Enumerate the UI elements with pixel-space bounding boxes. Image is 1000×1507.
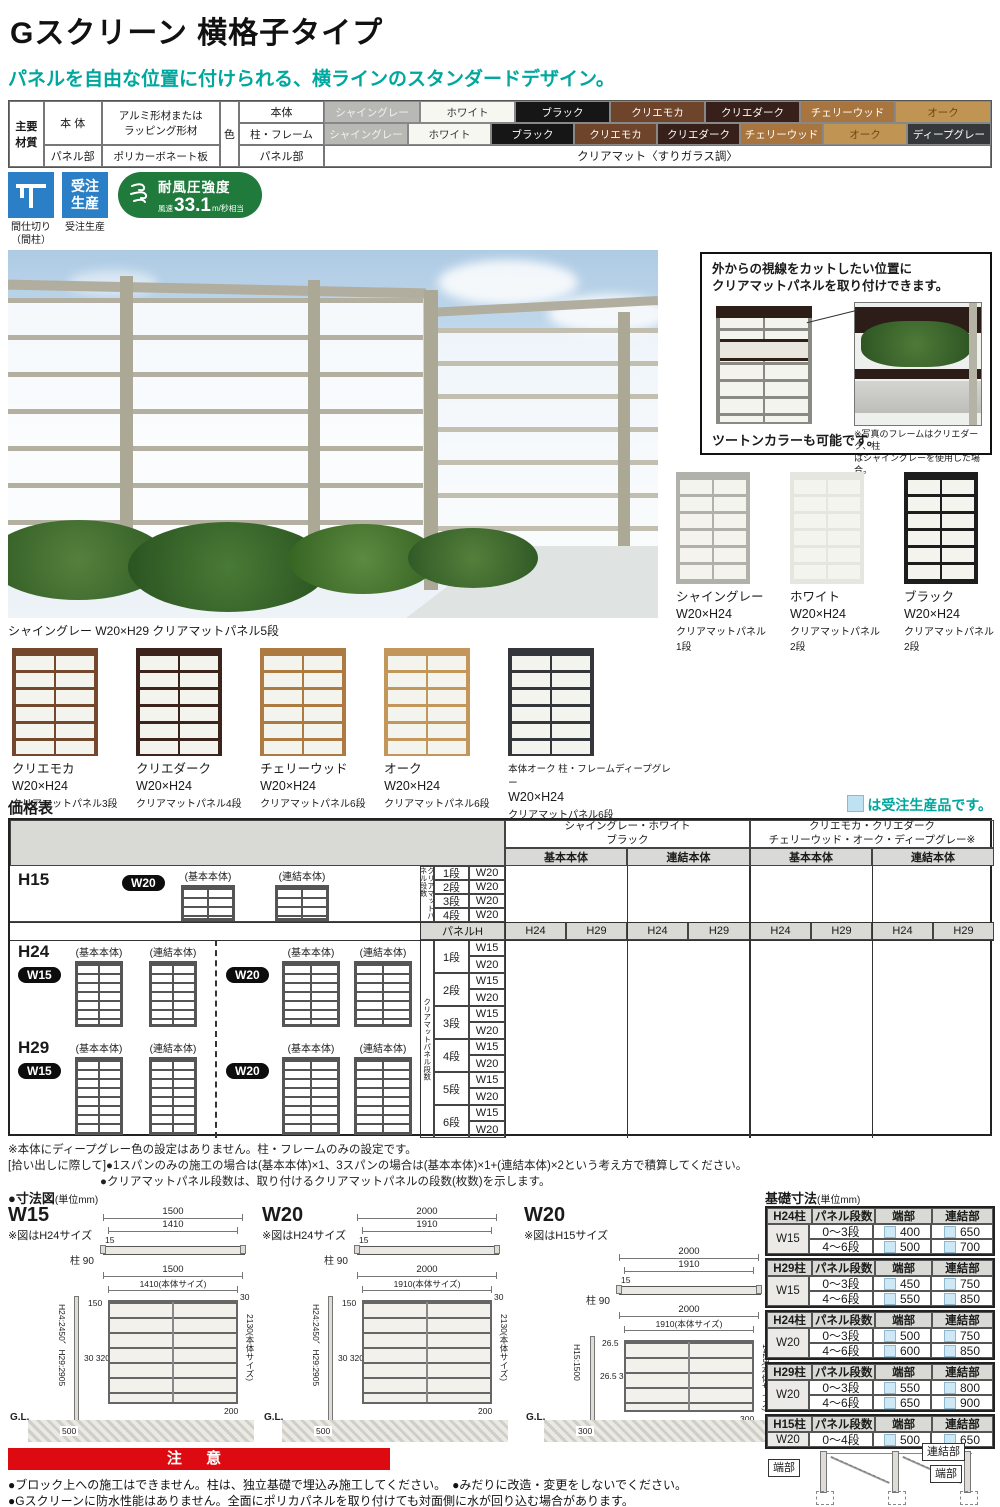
panel-h-col: H24 — [627, 922, 688, 940]
product-photo — [8, 250, 658, 618]
joint-label: 連結部 — [922, 1443, 965, 1461]
dan-cell: 1段 — [434, 940, 469, 973]
h15-basic-card: (基本本体) — [178, 868, 238, 921]
catalog-page: Gスクリーン 横格子タイプ パネルを自由な位置に付けられる、横ラインのスタンダー… — [0, 0, 1000, 1507]
swatch-crie-dark: クリエダーク — [705, 101, 800, 123]
variant-name: シャイングレー — [676, 590, 764, 604]
h24-w20-joint-card: (連結本体) — [350, 944, 416, 1027]
h15-dan-cell: 2段 — [434, 880, 469, 894]
variant-name: クリエモカ — [12, 762, 75, 776]
order-production-label: 受注生産 — [56, 222, 114, 235]
h29-w20-joint-card: (連結本体) — [350, 1040, 416, 1135]
mini-fence — [354, 1057, 412, 1135]
order-check — [884, 1382, 896, 1394]
swatch-oak-2: オーク — [823, 123, 907, 145]
foundation-title: 基礎寸法(単位mm) — [765, 1188, 860, 1207]
color-row2-label: 柱・フレーム — [239, 123, 324, 145]
price-sub-header: 連結本体 — [627, 848, 750, 866]
price-sub-header: 連結本体 — [872, 848, 994, 866]
photo-left-wall — [8, 298, 423, 550]
order-check — [944, 1226, 956, 1238]
h29-label: H29 — [18, 1038, 49, 1058]
panel-color-value: クリアマット〈すりガラス調〉 — [324, 145, 991, 167]
order-check — [944, 1241, 956, 1253]
page-subtitle: パネルを自由な位置に付けられる、横ラインのスタンダードデザイン。 — [8, 64, 615, 91]
variant-panels: クリアマットパネル2段 — [790, 623, 882, 653]
dim-diagram-w15: W15 ※図はH24サイズ 1500 1410 15 柱 90 1500 141… — [8, 1204, 254, 1456]
partition-label: 間仕切り （間柱） — [0, 222, 62, 247]
color-row3-label: パネル部 — [239, 145, 324, 167]
panel-h-col: H29 — [566, 922, 627, 940]
mini-fence — [75, 1057, 123, 1135]
h29-w15-badge: W15 — [18, 1063, 61, 1079]
order-check — [944, 1293, 956, 1305]
caution-line-1: ●ブロック上への施工はできません。柱は、独立基礎で埋込み施工してください。 ●み… — [8, 1476, 687, 1493]
dan-cell: 5段 — [434, 1072, 469, 1105]
size-cell: W20 — [469, 1088, 505, 1105]
wind-title: 耐風圧強度 — [158, 176, 244, 196]
h29-w20-badge: W20 — [226, 1063, 269, 1079]
mini-fence — [275, 885, 329, 921]
order-check — [944, 1278, 956, 1290]
materials-corner-label: 主要 材質 — [9, 101, 44, 167]
page-title: Gスクリーン 横格子タイプ — [10, 8, 383, 52]
wind-suffix: 相当 — [229, 205, 244, 213]
h15-width-badge: W20 — [122, 875, 165, 891]
size-cell: W20 — [469, 1055, 505, 1072]
partition-icon — [8, 172, 54, 218]
h15-dan-cell: 1段 — [434, 866, 469, 880]
variant-name: ホワイト — [790, 590, 840, 604]
h15-size-cell: W20 — [469, 880, 505, 894]
price-sub-header: 基本本体 — [505, 848, 627, 866]
mini-fence — [181, 885, 235, 921]
swatch-deep-gray: ディープグレー — [907, 123, 991, 145]
variant-fence — [790, 472, 864, 584]
variant-name: クリエダーク — [136, 762, 211, 776]
dan-cell: 4段 — [434, 1039, 469, 1072]
order-legend: は受注生産品です。 — [847, 795, 992, 815]
dan-cell: 3段 — [434, 1006, 469, 1039]
swatch-oak: オーク — [895, 101, 991, 123]
mini-fence — [354, 961, 412, 1027]
wind-icon — [130, 180, 152, 211]
h29-basic-card: (基本本体) — [68, 1040, 130, 1135]
variant-card: クリエダークW20×H24 クリアマットパネル4段 — [136, 648, 242, 821]
swatch-black: ブラック — [515, 101, 610, 123]
swatch-crie-mocha-2: クリエモカ — [574, 123, 657, 145]
panel-h-col: H24 — [750, 922, 811, 940]
edge-label-right: 端部 — [930, 1465, 962, 1483]
variant-card: 本体オーク 柱・フレームディープグレー W20×H24 クリアマットパネル6段 — [508, 648, 672, 821]
price-group2-header: クリエモカ・クリエダークチェリーウッド・オーク・ディープグレー※ — [750, 820, 994, 848]
panel-h-col: H24 — [872, 922, 933, 940]
dim-diagram-w20-h24: W20 ※図はH24サイズ 2000 1910 15 柱 90 2000 191… — [262, 1204, 508, 1456]
foundation-table-3: H24柱パネル段数端部連結部 W20 0〜3段500750 4〜6段600850 — [765, 1310, 995, 1360]
materials-body-label: 本 体 — [44, 101, 102, 145]
variant-card: オークW20×H24 クリアマットパネル6段 — [384, 648, 490, 821]
price-left-diagrams: H24 W15 (基本本体) (連結本体) W20 (基本本体) (連結本体) … — [10, 940, 420, 1138]
variant-size: W20×H24 — [12, 779, 68, 793]
dan-cell: 6段 — [434, 1105, 469, 1138]
panel-h-col: H29 — [811, 922, 872, 940]
order-production-icon: 受注 生産 — [62, 172, 108, 218]
order-check — [884, 1293, 896, 1305]
wind-unit: m/秒 — [212, 205, 229, 213]
caution-banner: 注 意 — [8, 1448, 390, 1470]
order-check — [884, 1241, 896, 1253]
edge-label-left: 端部 — [768, 1459, 800, 1477]
h15-row: H15 W20 (基本本体) (連結本体) — [10, 866, 420, 922]
size-cell: W20 — [469, 1121, 505, 1138]
price-note-1: ※本体にディープグレー色の設定はありません。柱・フレームのみの設定です。 — [8, 1141, 417, 1157]
dim-diagram-w20-h15: W20 ※図はH15サイズ 2000 1910 15 柱 90 2000 191… — [524, 1204, 770, 1456]
dan-rot-label: クリアマットパネル段数 — [420, 940, 434, 1138]
h15-joint-card: (連結本体) — [272, 868, 332, 921]
wind-value: 33.1 — [174, 196, 211, 215]
variant-fence — [904, 472, 978, 584]
price-group1-header: シャイングレー・ホワイトブラック — [505, 820, 750, 848]
materials-color-table: 主要 材質 本 体 アルミ形材または ラッピング形材 パネル部 ポリカーボネート… — [8, 100, 992, 168]
variant-fence — [508, 648, 594, 756]
h24-w15-badge: W15 — [18, 967, 61, 983]
order-check — [944, 1330, 956, 1342]
swatch-white-2: ホワイト — [408, 123, 491, 145]
materials-panel-desc: ポリカーボネート板 — [102, 145, 220, 167]
variant-fence — [384, 648, 470, 756]
h15-size-cell: W20 — [469, 908, 505, 922]
panel-h-col: H24 — [505, 922, 566, 940]
size-cell: W20 — [469, 956, 505, 973]
size-cell: W20 — [469, 989, 505, 1006]
swatch-shine-gray-2: シャイングレー — [324, 123, 408, 145]
variant-fence — [136, 648, 222, 756]
h24-w20-badge: W20 — [226, 967, 269, 983]
panel-h-col: H29 — [688, 922, 750, 940]
wind-prefix: 風速 — [158, 205, 173, 213]
swatch-shine-gray: シャイングレー — [324, 101, 420, 123]
order-check — [944, 1345, 956, 1357]
foundation-table-2: H29柱パネル段数端部連結部 W15 0〜3段450750 4〜6段550850 — [765, 1258, 995, 1308]
variant-name: ブラック — [904, 590, 954, 604]
color-row1-label: 本体 — [239, 101, 324, 123]
price-sub-header: 基本本体 — [750, 848, 872, 866]
order-check — [944, 1382, 956, 1394]
h15-dan-cell: 4段 — [434, 908, 469, 922]
variants-row-1: シャイングレーW20×H24 クリアマットパネル1段 ホワイトW20×H24 ク… — [676, 472, 996, 653]
variant-card: クリエモカW20×H24 クリアマットパネル3段 — [12, 648, 118, 821]
order-check — [884, 1330, 896, 1342]
materials-body-desc: アルミ形材または ラッピング形材 — [102, 101, 220, 145]
h24-w20-basic-card: (基本本体) — [278, 944, 344, 1027]
variant-name: 本体オーク 柱・フレームディープグレー — [508, 761, 672, 789]
swatch-cherry-wood-2: チェリーウッド — [740, 123, 823, 145]
swatch-crie-mocha: クリエモカ — [610, 101, 705, 123]
info-note: ※写真のフレームはクリエダーク、柱 はシャイングレーを使用した場合。 — [854, 428, 990, 477]
caution-line-2: ●Gスクリーンに防水性能はありません。全面にポリカパネルを取り付けても対面側に水… — [8, 1492, 634, 1507]
swatch-white: ホワイト — [420, 101, 515, 123]
price-table-title: 価格表 — [8, 797, 53, 818]
swatch-black-2: ブラック — [491, 123, 574, 145]
variant-size: W20×H24 — [904, 607, 960, 621]
info-photo-inset — [854, 302, 982, 426]
variant-card: チェリーウッドW20×H24 クリアマットパネル6段 — [260, 648, 366, 821]
size-cell: W15 — [469, 973, 505, 989]
swatch-cherry-wood: チェリーウッド — [800, 101, 895, 123]
h15-rot-label: クリアマットパネル段数 — [420, 866, 434, 922]
variant-size: W20×H24 — [384, 779, 440, 793]
panel-h-label: パネルH — [420, 922, 505, 940]
h15-size-cell: W20 — [469, 866, 505, 880]
foundation-table-4: H29柱パネル段数端部連結部 W20 0〜3段550800 4〜6段650900 — [765, 1362, 995, 1412]
price-table: シャイングレー・ホワイトブラック クリエモカ・クリエダークチェリーウッド・オーク… — [8, 818, 992, 1136]
mini-fence — [149, 961, 197, 1027]
h29-joint-card: (連結本体) — [142, 1040, 204, 1135]
variant-panels: クリアマットパネル4段 — [136, 795, 242, 810]
price-header-blank — [10, 820, 505, 866]
foundation-table-1: H24柱パネル段数端部連結部 W15 0〜3段400650 4〜6段500700 — [765, 1206, 995, 1256]
info-headline: 外からの視線をカットしたい位置に クリアマットパネルを取り付けできます。 — [712, 261, 948, 295]
variant-card: シャイングレーW20×H24 クリアマットパネル1段 — [676, 472, 768, 653]
info-box: 外からの視線をカットしたい位置に クリアマットパネルを取り付けできます。 ツート… — [700, 252, 992, 455]
h15-dan-cell: 3段 — [434, 894, 469, 908]
dan-cell: 2段 — [434, 973, 469, 1006]
h24-basic-card: (基本本体) — [68, 944, 130, 1027]
order-check — [884, 1397, 896, 1409]
info-fence-diagram — [716, 306, 812, 424]
variant-panels: クリアマットパネル1段 — [676, 623, 768, 653]
price-note-3: ●クリアマットパネル段数は、取り付けるクリアマットパネルの段数(枚数)を示します… — [100, 1173, 550, 1189]
h15-size-cell: W20 — [469, 894, 505, 908]
h24-joint-card: (連結本体) — [142, 944, 204, 1027]
price-note-2: [拾い出しに際して]●1スパンのみの施工の場合は(基本本体)×1、3スパンの場合… — [8, 1157, 747, 1173]
variant-panels: クリアマットパネル6段 — [384, 795, 490, 810]
variant-card: ブラックW20×H24 クリアマットパネル2段 — [904, 472, 996, 653]
variant-name: チェリーウッド — [260, 762, 348, 776]
size-cell: W15 — [469, 1072, 505, 1088]
variant-card: ホワイトW20×H24 クリアマットパネル2段 — [790, 472, 882, 653]
size-cell: W15 — [469, 1105, 505, 1121]
variant-size: W20×H24 — [136, 779, 192, 793]
size-cell: W20 — [469, 1022, 505, 1039]
variant-name: オーク — [384, 762, 422, 776]
h24-label: H24 — [18, 942, 49, 962]
wind-resistance-badge: 耐風圧強度 風速 33.1 m/秒 相当 — [118, 172, 262, 218]
foundation-diagram: 端部 連結部 端部 — [790, 1447, 995, 1505]
color-column-label: 色 — [220, 101, 239, 167]
mini-fence — [149, 1057, 197, 1135]
size-cell: W15 — [469, 940, 505, 956]
size-cell: W15 — [469, 1006, 505, 1022]
mini-fence — [282, 961, 340, 1027]
variant-size: W20×H24 — [790, 607, 846, 621]
order-check — [884, 1345, 896, 1357]
materials-panel-label: パネル部 — [44, 145, 102, 167]
variant-size: W20×H24 — [260, 779, 316, 793]
variant-size: W20×H24 — [676, 607, 732, 621]
order-check — [884, 1278, 896, 1290]
order-legend-swatch — [847, 795, 864, 812]
variant-size: W20×H24 — [508, 790, 564, 804]
panel-h-col: H29 — [933, 922, 994, 940]
mini-fence — [282, 1057, 340, 1135]
variant-fence — [12, 648, 98, 756]
swatch-crie-dark-2: クリエダーク — [657, 123, 740, 145]
variant-panels: クリアマットパネル2段 — [904, 623, 996, 653]
order-check — [884, 1434, 896, 1446]
mini-fence — [75, 961, 123, 1027]
size-cell: W15 — [469, 1039, 505, 1055]
order-check — [944, 1397, 956, 1409]
variants-row-2: クリエモカW20×H24 クリアマットパネル3段 クリエダークW20×H24 ク… — [12, 648, 672, 821]
h15-label: H15 — [18, 870, 49, 890]
variant-fence — [260, 648, 346, 756]
variant-panels: クリアマットパネル6段 — [260, 795, 366, 810]
h29-w20-basic-card: (基本本体) — [278, 1040, 344, 1135]
order-check — [884, 1226, 896, 1238]
variant-fence — [676, 472, 750, 584]
photo-caption: シャイングレー W20×H29 クリアマットパネル5段 — [8, 622, 279, 639]
order-legend-text: は受注生産品です。 — [867, 797, 992, 813]
